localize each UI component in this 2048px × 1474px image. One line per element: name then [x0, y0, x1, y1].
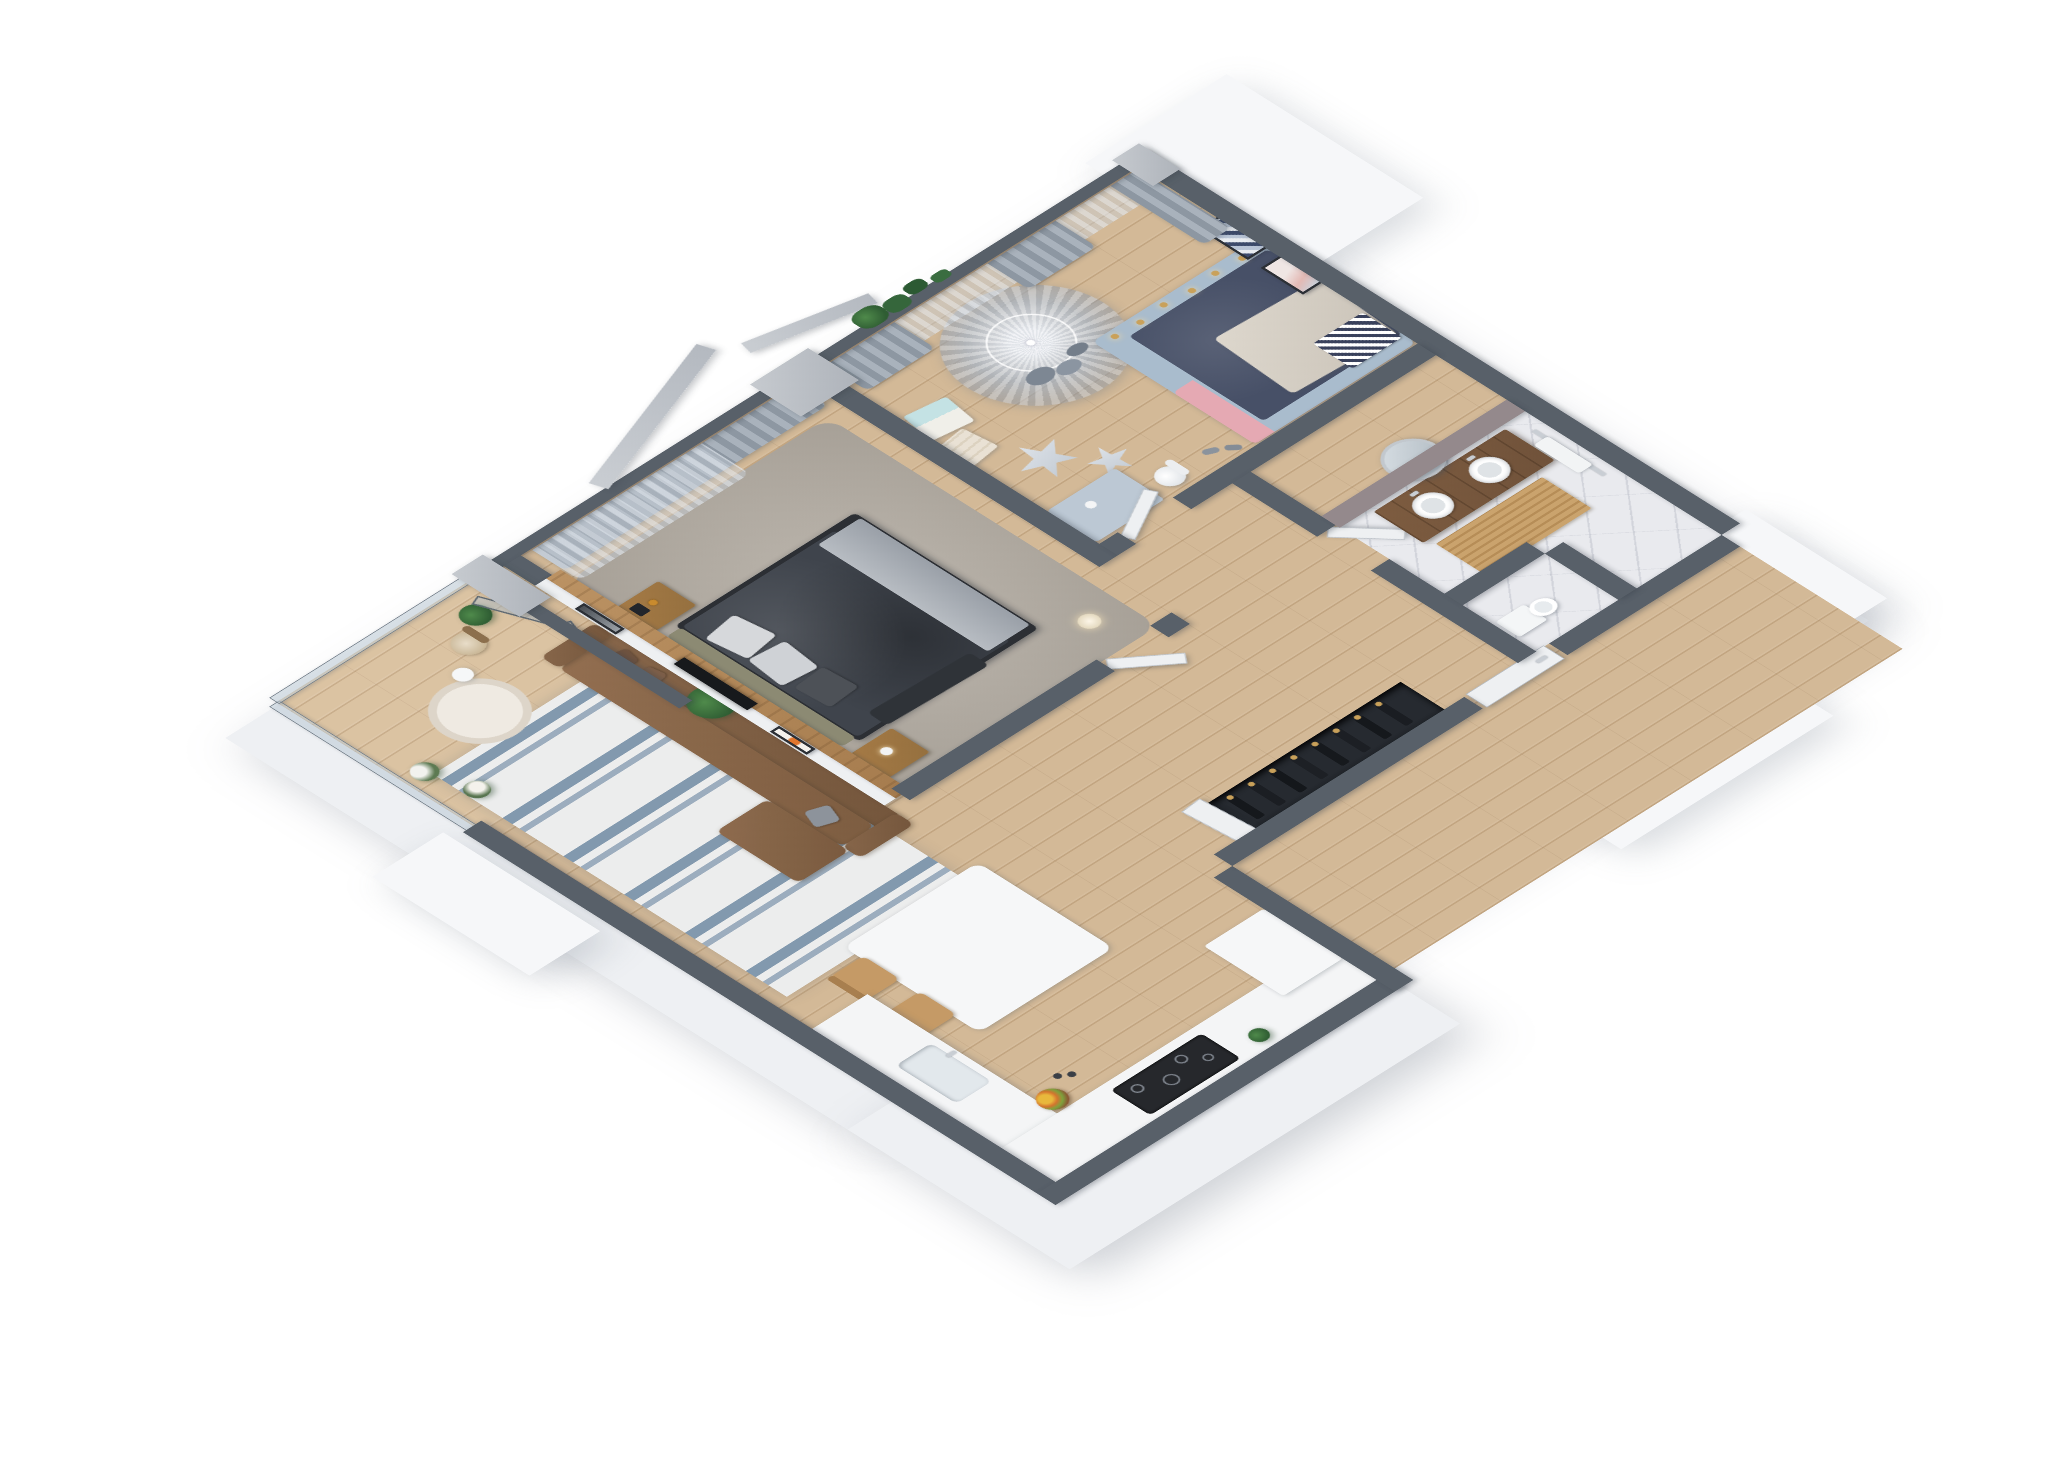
- render-canvas: [0, 0, 2048, 1474]
- floor-plan-layer: [256, 146, 1953, 1214]
- kids-slipper-2: [1224, 444, 1242, 450]
